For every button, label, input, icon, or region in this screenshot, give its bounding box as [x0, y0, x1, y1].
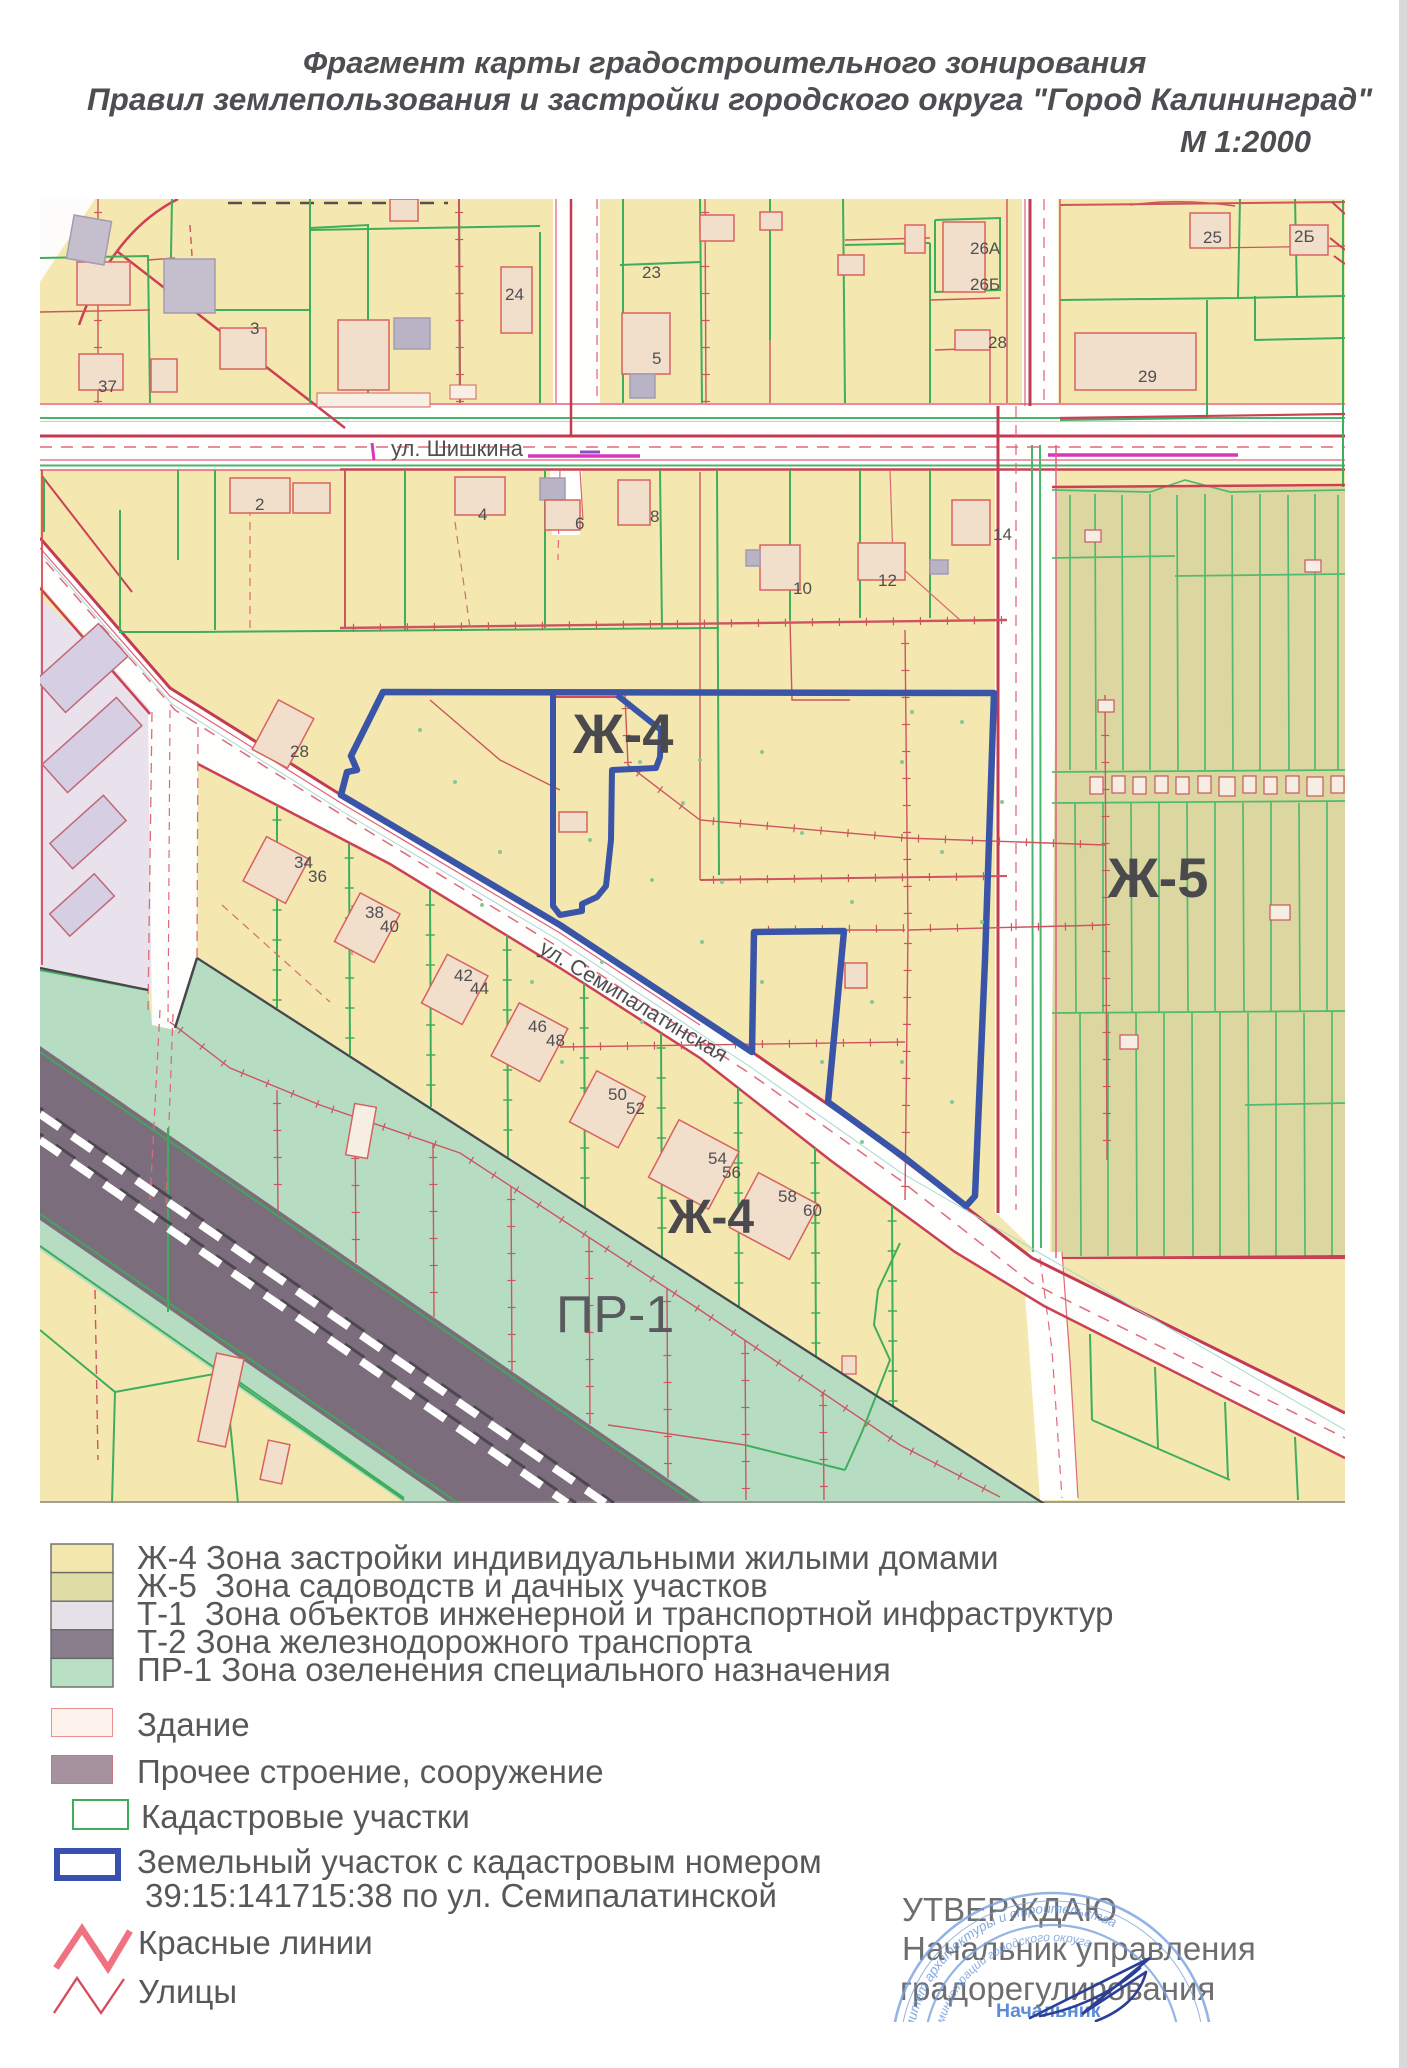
svg-text:46: 46 [528, 1017, 547, 1036]
svg-text:ул. Шишкина: ул. Шишкина [391, 436, 524, 461]
svg-text:Ж-5: Ж-5 [1107, 846, 1208, 909]
svg-text:44: 44 [470, 979, 489, 998]
svg-text:ПР-1: ПР-1 [556, 1286, 674, 1344]
svg-text:29: 29 [1138, 367, 1157, 386]
svg-text:8: 8 [650, 507, 659, 526]
svg-text:23: 23 [642, 263, 661, 282]
svg-text:24: 24 [505, 285, 524, 304]
svg-text:26Б: 26Б [970, 275, 1000, 294]
svg-text:40: 40 [380, 917, 399, 936]
svg-text:28: 28 [988, 333, 1007, 352]
svg-text:52: 52 [626, 1099, 645, 1118]
svg-text:3: 3 [250, 319, 259, 338]
svg-text:5: 5 [652, 349, 661, 368]
svg-text:56: 56 [722, 1163, 741, 1182]
svg-text:4: 4 [478, 505, 487, 524]
svg-text:28: 28 [290, 742, 309, 761]
svg-text:14: 14 [993, 525, 1012, 544]
svg-text:50: 50 [608, 1085, 627, 1104]
svg-text:2: 2 [255, 495, 264, 514]
svg-text:10: 10 [793, 579, 812, 598]
svg-text:2Б: 2Б [1294, 227, 1315, 246]
svg-text:12: 12 [878, 571, 897, 590]
svg-text:36: 36 [308, 867, 327, 886]
svg-text:60: 60 [803, 1201, 822, 1220]
svg-text:58: 58 [778, 1187, 797, 1206]
svg-text:48: 48 [546, 1031, 565, 1050]
svg-text:Ж-4: Ж-4 [667, 1191, 754, 1244]
svg-text:26А: 26А [970, 239, 1001, 258]
svg-text:37: 37 [98, 377, 117, 396]
svg-text:Ж-4: Ж-4 [572, 702, 673, 765]
svg-text:25: 25 [1203, 228, 1222, 247]
svg-text:6: 6 [575, 514, 584, 533]
